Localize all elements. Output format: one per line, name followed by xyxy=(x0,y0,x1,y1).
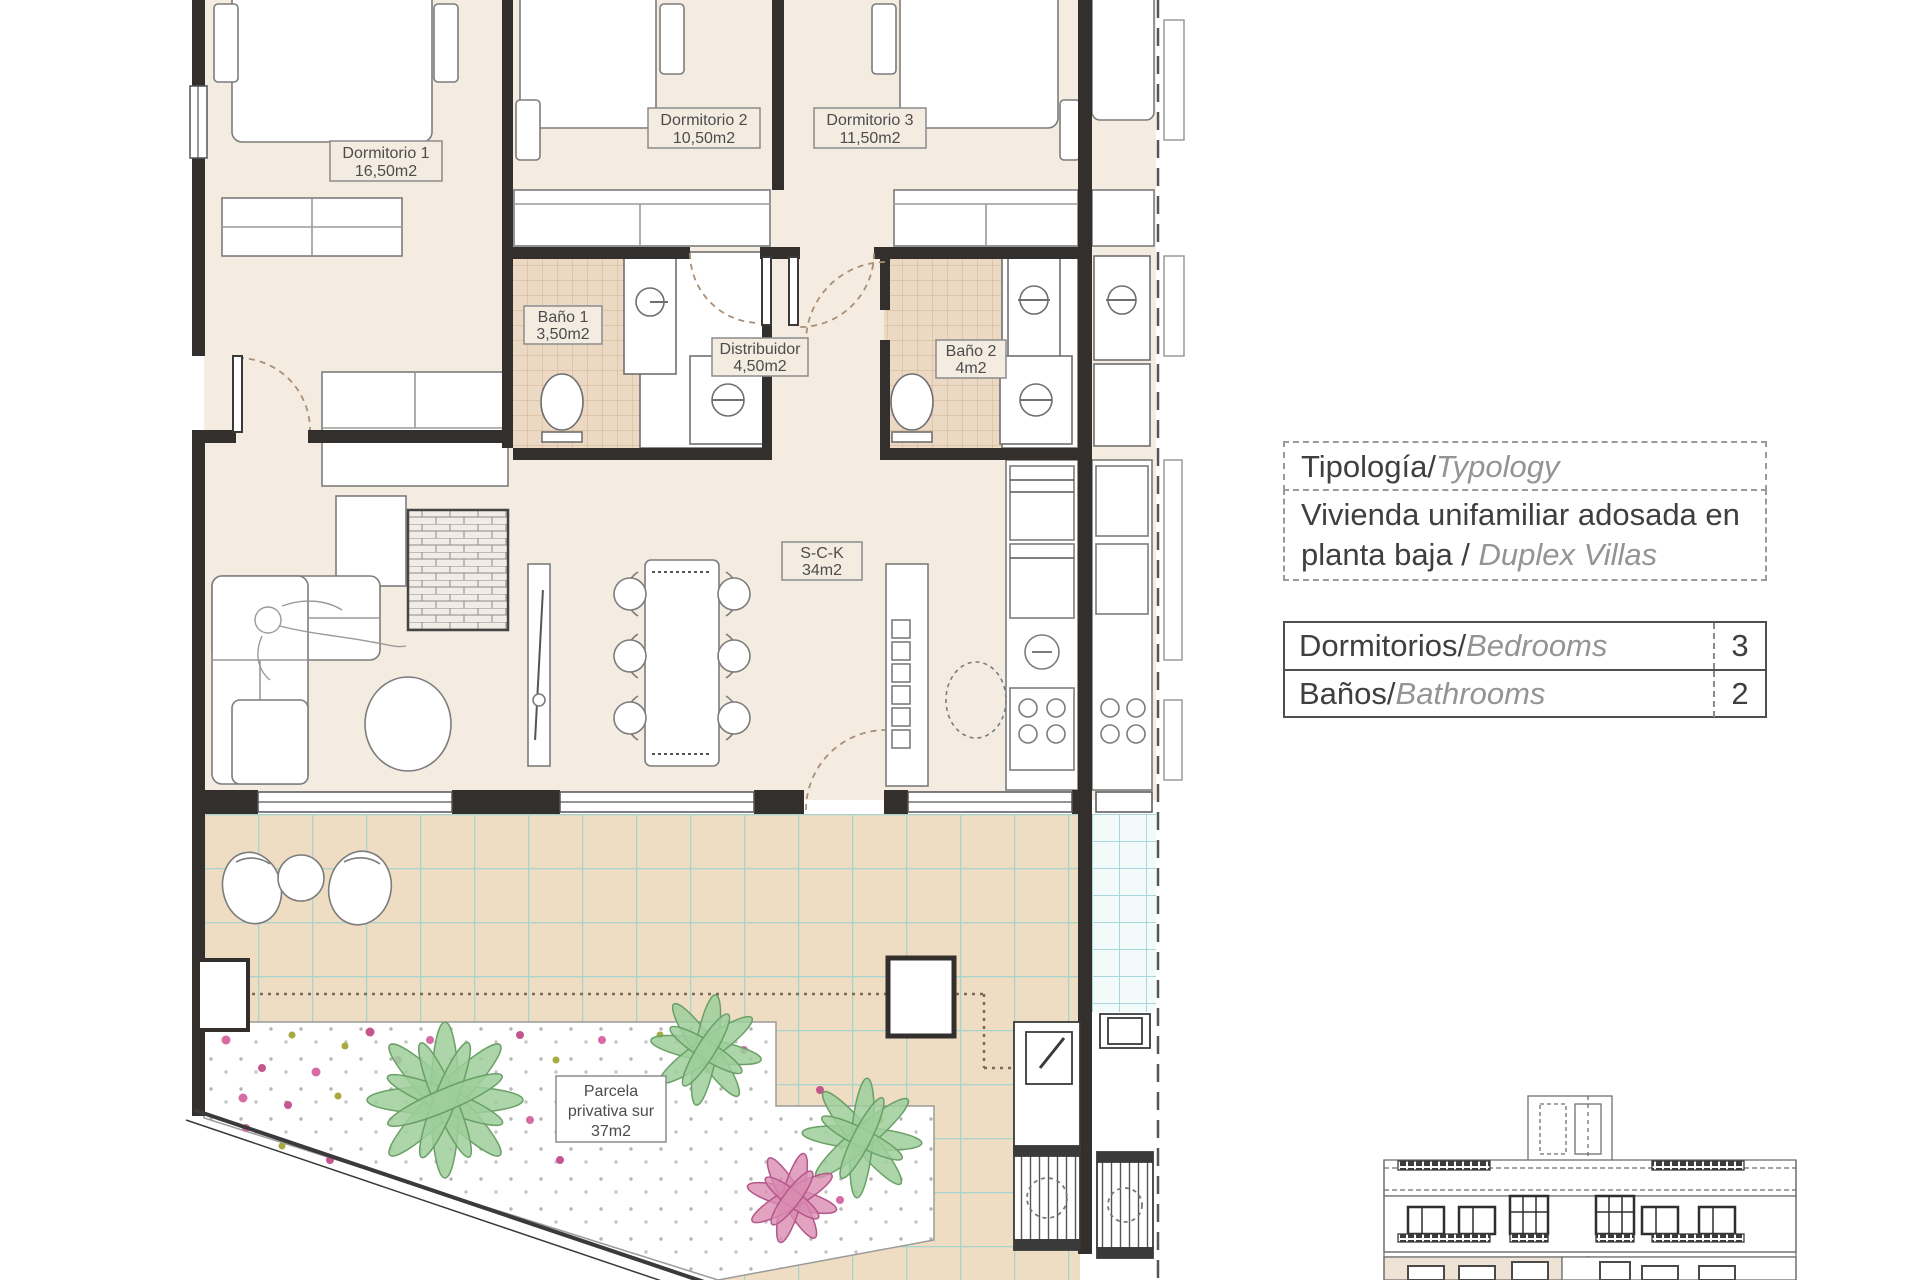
spec-row-bathrooms: Baños/Bathrooms 2 xyxy=(1285,671,1765,717)
pillar-mid xyxy=(888,958,954,1036)
svg-text:4,50m2: 4,50m2 xyxy=(733,358,786,375)
bed-dormitorio-1 xyxy=(232,0,432,142)
room-label-dormitorio-2: Dormitorio 2 10,50m2 xyxy=(648,108,760,148)
coffee-table xyxy=(365,677,451,771)
svg-text:37m2: 37m2 xyxy=(591,1123,631,1140)
specs-table: Dormitorios/Bedrooms 3 Baños/Bathrooms 2 xyxy=(1283,621,1767,718)
svg-text:Baño 2: Baño 2 xyxy=(946,343,997,360)
terrace-side-table xyxy=(278,855,324,901)
svg-text:16,50m2: 16,50m2 xyxy=(355,163,417,180)
stair-hatch-1 xyxy=(1014,1156,1080,1240)
kitchen-counter xyxy=(1006,460,1078,790)
bathrooms-label: Baños/Bathrooms xyxy=(1285,676,1713,712)
balcony-railing-right xyxy=(1652,1234,1744,1242)
bed-neighbor xyxy=(1092,0,1154,120)
svg-text:Dormitorio 1: Dormitorio 1 xyxy=(342,145,429,162)
stair-block xyxy=(408,510,508,630)
room-label-sck: S-C-K 34m2 xyxy=(782,542,862,580)
svg-text:11,50m2: 11,50m2 xyxy=(839,130,900,147)
svg-text:10,50m2: 10,50m2 xyxy=(673,130,735,147)
palm-plant-large xyxy=(367,1022,523,1178)
svg-text:Distribuidor: Distribuidor xyxy=(720,341,802,358)
toilet-bath2 xyxy=(891,374,933,430)
roof-railing-left xyxy=(1398,1161,1490,1170)
balcony-railing-left xyxy=(1398,1234,1490,1242)
typology-label-es: Tipología/ xyxy=(1301,449,1436,484)
svg-text:Dormitorio 3: Dormitorio 3 xyxy=(826,112,913,129)
neighbor-kitchen xyxy=(1092,460,1152,790)
wardrobe-d1 xyxy=(222,198,402,256)
wardrobe-neighbor xyxy=(1092,190,1154,246)
roof-railing-right xyxy=(1652,1161,1744,1170)
svg-text:Baño 1: Baño 1 xyxy=(538,309,589,326)
svg-text:Parcela: Parcela xyxy=(584,1083,638,1100)
room-label-parcela: Parcela privativa sur 37m2 xyxy=(556,1076,666,1142)
room-label-dormitorio-3: Dormitorio 3 11,50m2 xyxy=(814,108,926,148)
floor-plan: Dormitorio 1 16,50m2 Dormitorio 2 10,50m… xyxy=(186,0,1184,1280)
building-elevation xyxy=(1384,1096,1796,1280)
typology-label-en: Typology xyxy=(1436,449,1560,484)
bedrooms-count: 3 xyxy=(1713,623,1765,669)
svg-text:4m2: 4m2 xyxy=(955,360,986,377)
wardrobe-d2 xyxy=(514,190,770,246)
typology-value-box: Vivienda unifamiliar adosada en planta b… xyxy=(1283,489,1767,581)
kitchen-island xyxy=(886,564,928,786)
floorplan-sheet: Dormitorio 1 16,50m2 Dormitorio 2 10,50m… xyxy=(0,0,1920,1280)
spec-row-bedrooms: Dormitorios/Bedrooms 3 xyxy=(1285,623,1765,671)
bedrooms-label: Dormitorios/Bedrooms xyxy=(1285,628,1713,664)
room-label-bano-1: Baño 1 3,50m2 xyxy=(524,306,602,344)
room-label-dormitorio-1: Dormitorio 1 16,50m2 xyxy=(330,141,442,181)
svg-text:privativa sur: privativa sur xyxy=(568,1103,655,1120)
typology-title-box: Tipología/Typology xyxy=(1283,441,1767,491)
svg-text:3,50m2: 3,50m2 xyxy=(536,326,589,343)
wardrobe-d3 xyxy=(894,190,1078,246)
tv-panel xyxy=(528,564,550,766)
toilet-bath1 xyxy=(541,374,583,430)
terrace-windows xyxy=(258,792,1152,812)
bathrooms-count: 2 xyxy=(1713,671,1765,717)
svg-text:S-C-K: S-C-K xyxy=(800,545,844,562)
room-label-bano-2: Baño 2 4m2 xyxy=(936,340,1006,378)
pillar-left xyxy=(198,960,248,1030)
svg-text:Dormitorio 2: Dormitorio 2 xyxy=(660,112,747,129)
cut-fragments xyxy=(1164,20,1184,780)
stair-hatch-2 xyxy=(1097,1162,1153,1248)
svg-text:34m2: 34m2 xyxy=(802,562,842,579)
neighbor-terrace xyxy=(1092,814,1156,1012)
room-label-distribuidor: Distribuidor 4,50m2 xyxy=(712,338,808,376)
typology-value-en: Duplex Villas xyxy=(1479,537,1658,572)
